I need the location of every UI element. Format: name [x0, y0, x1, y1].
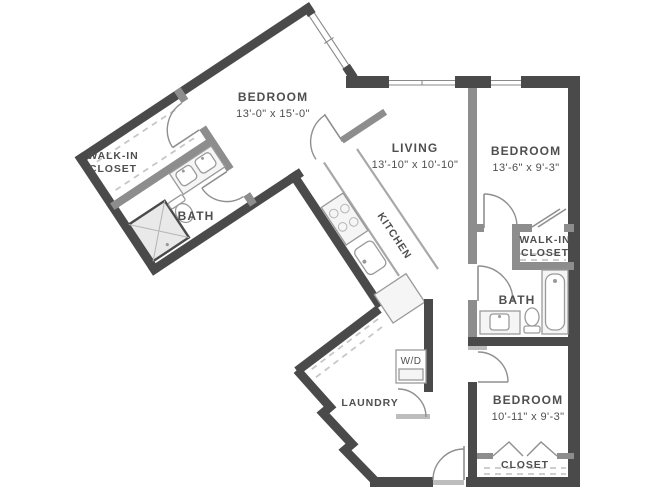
bedroom1-door	[298, 114, 343, 159]
closet3-wall-stub	[477, 453, 493, 459]
bedroom2-bottom-wall	[468, 224, 484, 232]
bedroom3-left-wall	[468, 382, 477, 477]
wic2-doors	[532, 209, 566, 227]
living-dims: 13'-10" x 10'-10"	[372, 159, 459, 171]
bath2-bottom-wall	[468, 337, 574, 346]
floor-plan: KITCHEN W/D	[0, 0, 650, 490]
laundry-label: LAUNDRY	[341, 397, 398, 409]
entry-door	[433, 446, 464, 480]
stove-icon	[321, 193, 368, 245]
laundry-door	[396, 389, 430, 419]
wing-top-wall	[75, 2, 314, 165]
living-label: LIVING	[392, 141, 439, 155]
vanity2-icon	[480, 311, 520, 334]
living-window	[389, 76, 455, 88]
wic2-label-line2: CLOSET	[521, 247, 569, 259]
wic2-bottom-wall	[512, 262, 574, 270]
bedroom2-window	[491, 76, 521, 88]
wd-label: W/D	[401, 356, 422, 367]
laundry-shelf-wall	[297, 309, 379, 371]
bedroom2-door	[484, 194, 517, 228]
washer-dryer-icon: W/D	[396, 350, 426, 383]
bedroom1-label: BEDROOM	[238, 90, 308, 104]
closet3-label: CLOSET	[501, 459, 549, 471]
wic1-label-line2: CLOSET	[89, 163, 137, 175]
jagged-exterior-wall	[297, 370, 378, 484]
closet3-bifold-doors	[493, 442, 557, 456]
entry-threshold	[433, 480, 464, 485]
bedroom2-dims: 13'-6" x 9'-3"	[492, 162, 559, 174]
bedroom2-bottom-wall	[564, 224, 574, 232]
bathtub-icon	[542, 270, 568, 334]
bedroom3-dims: 10'-11" x 9'-3"	[492, 411, 565, 423]
wic2-label-line1: WALK-IN	[519, 234, 570, 246]
bath1-label: BATH	[178, 209, 215, 223]
refrigerator-icon	[374, 274, 424, 323]
right-exterior-wall	[568, 76, 580, 487]
floor-plan-drawing: KITCHEN W/D	[0, 0, 650, 490]
bedroom3-threshold	[468, 346, 487, 350]
bedroom1-hall-stub	[340, 109, 387, 144]
closet3-wall-stub	[557, 453, 574, 459]
toilet2-icon	[524, 308, 540, 333]
bedroom2-label: BEDROOM	[491, 144, 561, 158]
kitchen-exterior-wall	[288, 170, 384, 308]
laundry-shelf-dashes	[308, 319, 378, 372]
bedroom3-label: BEDROOM	[493, 393, 563, 407]
bath2-left-wall	[468, 232, 477, 264]
wic1-label-line1: WALK-IN	[87, 150, 138, 162]
top-exterior-wall	[346, 76, 578, 88]
bedroom1-dims: 13'-0" x 15'-0"	[236, 108, 310, 120]
bath2-label: BATH	[499, 293, 536, 307]
bottom-wall-right	[466, 477, 578, 487]
bedroom3-door	[478, 352, 508, 382]
bedroom1-window	[307, 12, 350, 70]
living-bedroom2-wall	[468, 88, 477, 224]
